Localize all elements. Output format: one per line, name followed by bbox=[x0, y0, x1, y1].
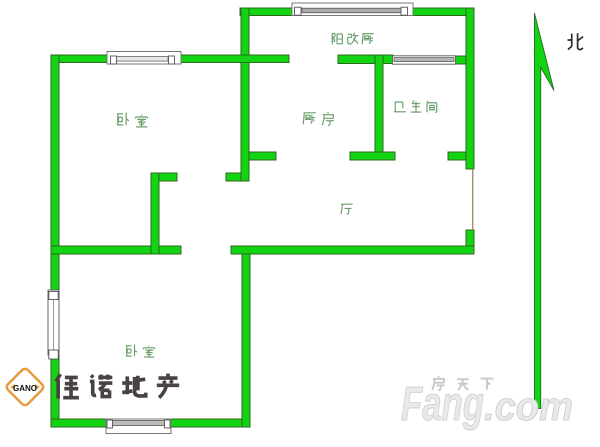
svg-text:GANO: GANO bbox=[13, 384, 37, 393]
svg-text:.com: .com bbox=[484, 385, 573, 429]
svg-text:Fang: Fang bbox=[401, 378, 484, 431]
